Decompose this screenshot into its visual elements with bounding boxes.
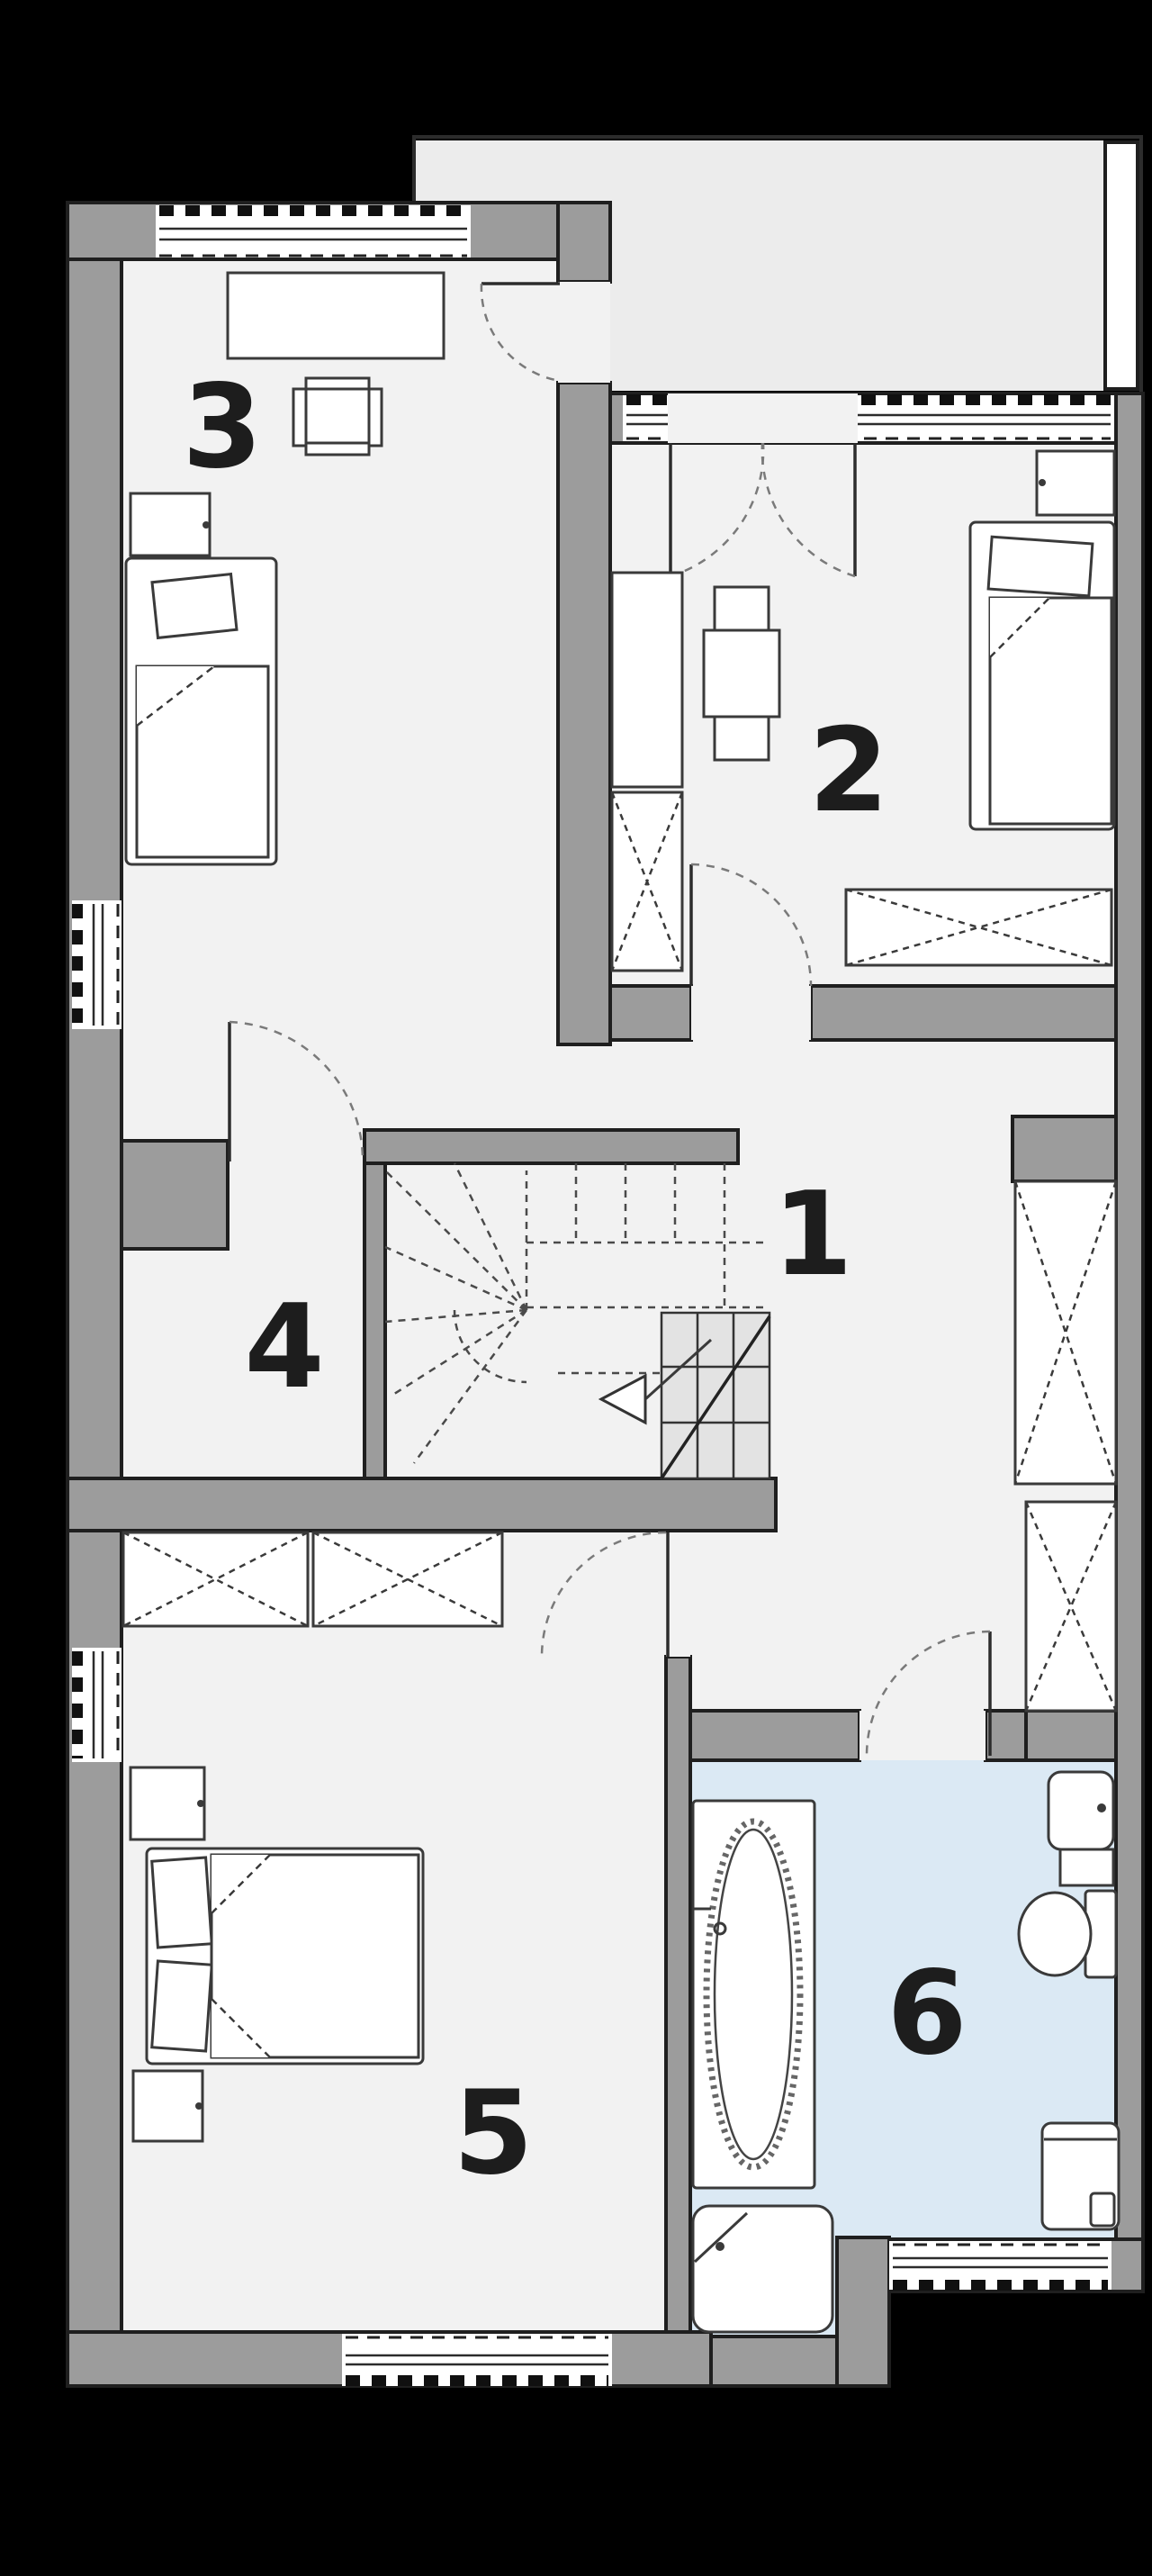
- nightstand: [1037, 451, 1114, 515]
- nightstand-knob: [1039, 479, 1046, 486]
- pillow: [988, 537, 1093, 596]
- desk: [228, 273, 444, 358]
- single-bed: [126, 558, 276, 864]
- wardrobe-x: [1015, 1181, 1116, 1484]
- dresser-x: [846, 890, 1111, 965]
- pillow: [152, 1857, 212, 1948]
- room-label-4: 4: [244, 1280, 324, 1415]
- hall-wardrobes: [1015, 1181, 1116, 1711]
- window-bottom-bath: [889, 2241, 1111, 2290]
- pillow: [152, 1961, 212, 2051]
- nightstand: [130, 1767, 204, 1839]
- wall-hall-niche: [1012, 1116, 1116, 1181]
- pillar: [1105, 142, 1138, 389]
- window-bottom-room5: [342, 2334, 612, 2386]
- cabinet: [612, 573, 682, 787]
- wall-bath-top-c: [1026, 1711, 1116, 1760]
- wardrobe-x: [612, 792, 682, 971]
- wall-room3-room2-a: [558, 203, 610, 282]
- nightstand: [133, 2071, 202, 2141]
- room-label-2: 2: [808, 704, 888, 838]
- wall-bath-left: [666, 1657, 690, 2339]
- washing-machine: [1042, 2123, 1119, 2229]
- window-left-lower: [72, 1648, 121, 1762]
- drain: [715, 2242, 724, 2251]
- wardrobe-x: [123, 1532, 308, 1626]
- floor-plan: 1 2 3 4 5 6: [0, 0, 1152, 2576]
- single-bed: [970, 522, 1114, 829]
- wall-right: [1116, 393, 1143, 2291]
- wall-bath-stub: [837, 2237, 889, 2386]
- wall-left: [67, 203, 121, 2386]
- window-left-upper: [72, 900, 121, 1029]
- table-chair: [704, 587, 779, 760]
- wall-stairs-left: [364, 1163, 385, 1478]
- wall-room3-room2-b: [558, 383, 610, 1044]
- nightstand-knob: [197, 1800, 204, 1807]
- tap: [1097, 1803, 1106, 1812]
- shower-tray: [693, 2206, 832, 2332]
- toilet: [1019, 1891, 1116, 1977]
- room-label-1: 1: [772, 1168, 852, 1302]
- bathtub: [693, 1801, 814, 2188]
- pillow: [152, 574, 237, 638]
- double-bed: [147, 1848, 423, 2064]
- desk-chair: [293, 378, 382, 455]
- wall-bath-top-a: [690, 1711, 859, 1760]
- floor-plan-page: 1 2 3 4 5 6: [0, 0, 1152, 2576]
- wall-stairs-top: [364, 1130, 738, 1163]
- nightstand-knob: [195, 2102, 202, 2110]
- nightstand: [130, 493, 210, 556]
- room-label-5: 5: [453, 2066, 533, 2201]
- wall-room2-hall-a: [610, 986, 691, 1040]
- wall-room2-hall-b: [811, 986, 1116, 1040]
- wall-room4-top: [121, 1141, 228, 1249]
- window-top: [156, 205, 471, 258]
- room-label-6: 6: [886, 1947, 967, 2081]
- wall-room5-top: [67, 1478, 776, 1531]
- blanket: [211, 1855, 418, 2057]
- room-label-3: 3: [182, 360, 262, 494]
- wardrobe-x: [313, 1532, 502, 1626]
- wardrobe-x: [1026, 1502, 1116, 1711]
- nightstand-knob: [202, 521, 210, 529]
